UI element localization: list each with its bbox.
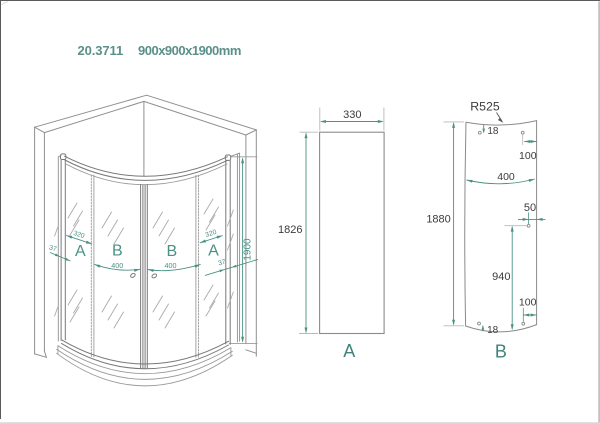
svg-text:20.3711: 20.3711 [78, 43, 124, 58]
svg-text:100: 100 [519, 150, 537, 162]
svg-text:18: 18 [487, 325, 499, 336]
svg-text:18: 18 [487, 126, 499, 137]
svg-text:400: 400 [497, 171, 515, 183]
svg-text:900x900x1900mm: 900x900x1900mm [138, 43, 241, 58]
svg-text:B: B [166, 243, 177, 260]
svg-text:330: 330 [343, 109, 361, 121]
svg-text:A: A [208, 242, 219, 259]
svg-text:400: 400 [165, 261, 177, 270]
svg-text:B: B [495, 342, 507, 362]
svg-text:A: A [343, 341, 355, 361]
svg-text:B: B [112, 243, 123, 260]
svg-text:R525: R525 [470, 100, 500, 114]
svg-text:50: 50 [524, 202, 536, 214]
svg-text:400: 400 [111, 261, 123, 270]
svg-text:1880: 1880 [426, 214, 450, 226]
svg-text:1900: 1900 [242, 238, 253, 261]
svg-text:1826: 1826 [278, 224, 302, 236]
svg-text:100: 100 [519, 296, 537, 308]
svg-text:940: 940 [492, 271, 510, 283]
svg-text:A: A [75, 243, 86, 260]
